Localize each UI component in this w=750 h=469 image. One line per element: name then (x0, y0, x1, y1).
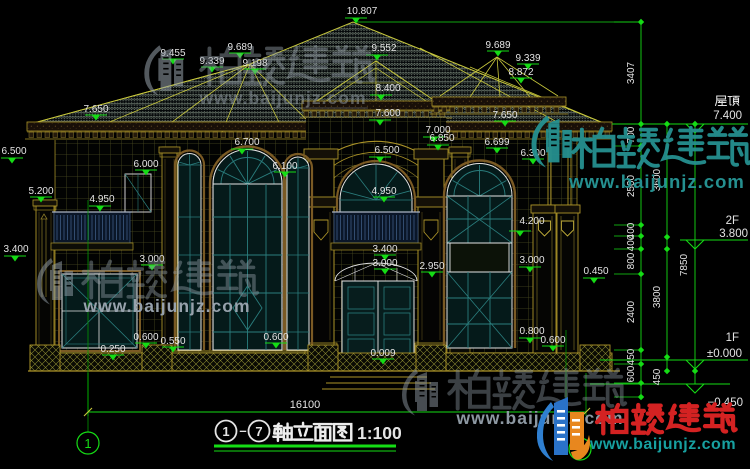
svg-text:9.689: 9.689 (485, 40, 510, 51)
svg-text:3.400: 3.400 (372, 244, 397, 255)
svg-text:10.807: 10.807 (347, 6, 378, 17)
svg-text:±0.000: ±0.000 (707, 348, 742, 360)
svg-text:6.100: 6.100 (272, 161, 297, 172)
svg-text:0.600: 0.600 (540, 335, 565, 346)
svg-text:7.400: 7.400 (713, 110, 742, 122)
svg-text:www.baijunjz.com: www.baijunjz.com (82, 296, 250, 316)
svg-text:400: 400 (626, 234, 637, 251)
svg-text:2400: 2400 (626, 300, 637, 323)
svg-text:9.689: 9.689 (227, 42, 252, 53)
svg-text:0.450: 0.450 (583, 266, 608, 277)
svg-text:5.200: 5.200 (28, 186, 53, 197)
svg-text:3.000: 3.000 (519, 255, 544, 266)
svg-text:8.400: 8.400 (375, 83, 400, 94)
svg-text:0.600: 0.600 (133, 332, 158, 343)
svg-text:1: 1 (84, 436, 91, 451)
svg-text:4.950: 4.950 (89, 194, 114, 205)
svg-text:6.500: 6.500 (1, 146, 26, 157)
svg-text:www.baijunjz.com: www.baijunjz.com (589, 436, 736, 453)
svg-text:0.250: 0.250 (100, 344, 125, 355)
svg-text:6.500: 6.500 (374, 145, 399, 156)
svg-text:3.400: 3.400 (3, 244, 28, 255)
svg-text:3407: 3407 (626, 61, 637, 84)
svg-text:4.950: 4.950 (371, 186, 396, 197)
svg-text:3800: 3800 (652, 285, 663, 308)
svg-text:8.872: 8.872 (508, 67, 533, 78)
svg-text:1F: 1F (726, 332, 739, 344)
svg-text:450: 450 (652, 368, 663, 385)
svg-text:800: 800 (626, 252, 637, 269)
svg-text:7: 7 (255, 424, 262, 439)
svg-text:7850: 7850 (679, 253, 690, 276)
svg-text:0.550: 0.550 (160, 336, 185, 347)
svg-text:7.650: 7.650 (492, 110, 517, 121)
svg-text:6.850: 6.850 (429, 133, 454, 144)
svg-text:–: – (239, 423, 246, 438)
svg-text:16100: 16100 (290, 399, 321, 411)
svg-text:www.baijunjz.com: www.baijunjz.com (198, 88, 366, 108)
svg-text:6.700: 6.700 (234, 137, 259, 148)
svg-text:www.baijunjz.com: www.baijunjz.com (568, 171, 745, 192)
svg-text:9.552: 9.552 (371, 43, 396, 54)
svg-text:2.950: 2.950 (419, 261, 444, 272)
svg-text:6.699: 6.699 (484, 137, 509, 148)
svg-text:2F: 2F (726, 215, 739, 227)
svg-text:600: 600 (626, 365, 637, 382)
svg-text:0.009: 0.009 (370, 348, 395, 359)
svg-text:0.600: 0.600 (263, 332, 288, 343)
svg-text:3.800: 3.800 (719, 228, 748, 240)
svg-text:7.600: 7.600 (375, 108, 400, 119)
svg-text:6.000: 6.000 (133, 159, 158, 170)
svg-text:7.650: 7.650 (83, 104, 108, 115)
svg-text:450: 450 (626, 348, 637, 365)
svg-text:3.000: 3.000 (372, 258, 397, 269)
svg-text:1:100: 1:100 (357, 423, 402, 443)
svg-text:1: 1 (222, 424, 229, 439)
svg-text:9.339: 9.339 (515, 53, 540, 64)
svg-text:4.200: 4.200 (519, 216, 544, 227)
